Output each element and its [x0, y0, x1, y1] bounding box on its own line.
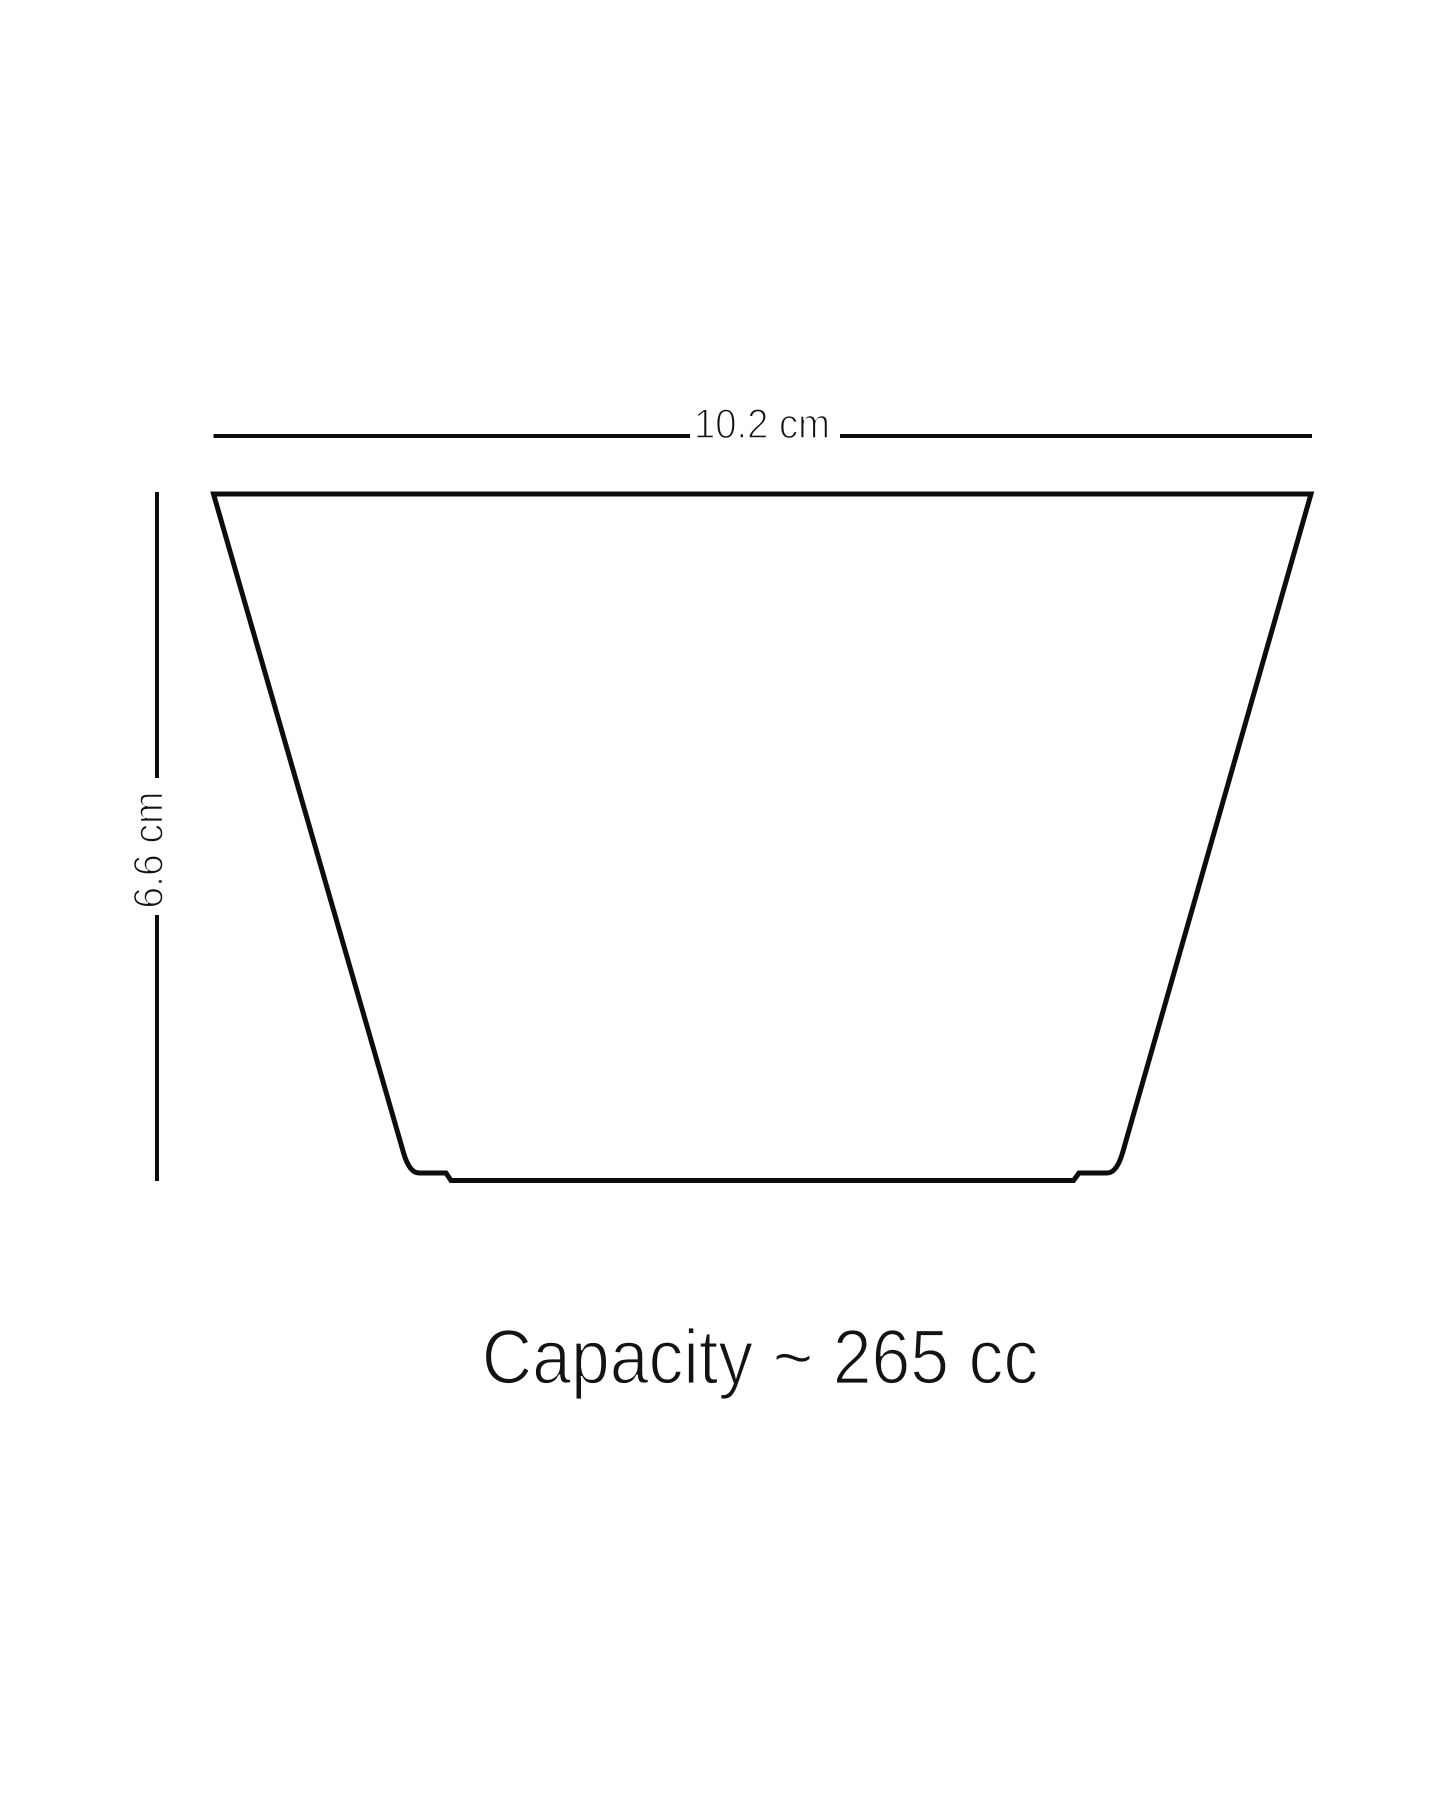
svg-text:Capacity ~ 265 cc: Capacity ~ 265 cc: [482, 1313, 1038, 1400]
svg-text:10.2 cm: 10.2 cm: [694, 400, 830, 447]
svg-text:6.6 cm: 6.6 cm: [124, 791, 172, 908]
